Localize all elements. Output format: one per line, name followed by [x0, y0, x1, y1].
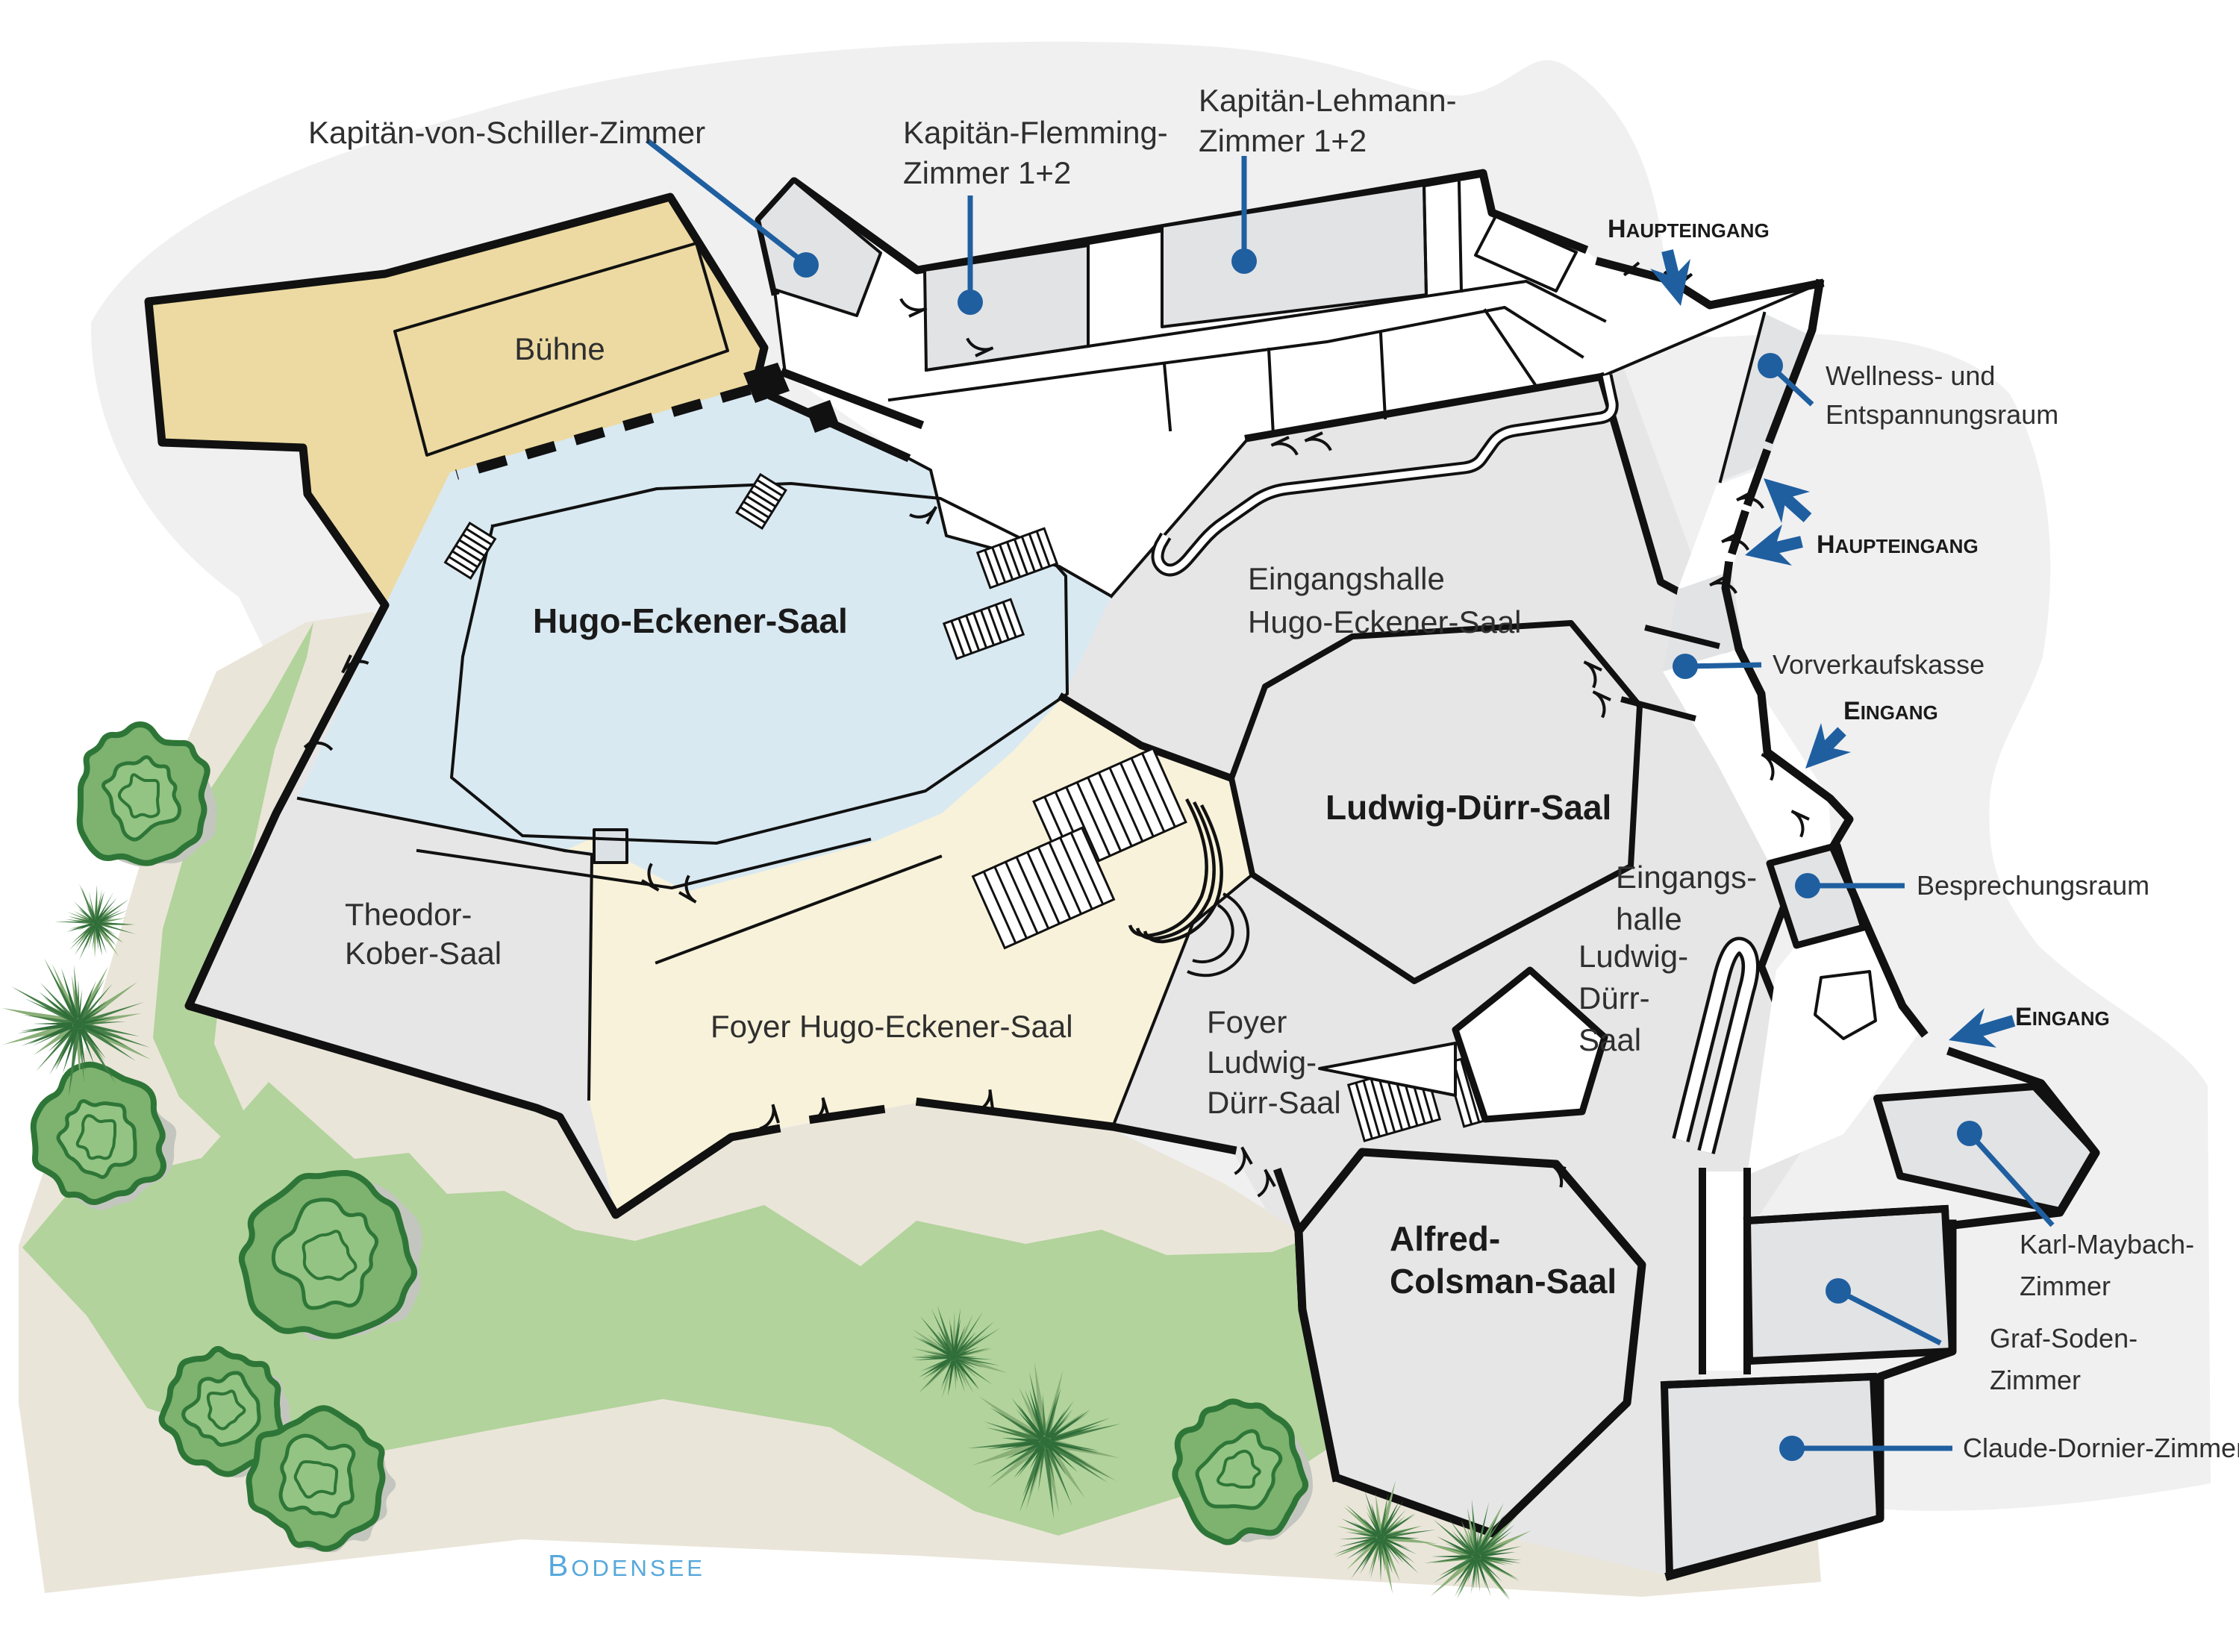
svg-text:Dürr-Saal: Dürr-Saal: [1207, 1085, 1341, 1120]
svg-text:Zimmer: Zimmer: [2020, 1271, 2111, 1301]
svg-text:Kapitän-Flemming-: Kapitän-Flemming-: [903, 115, 1168, 150]
svg-text:HAUPTEINGANG: HAUPTEINGANG: [1817, 531, 1979, 559]
svg-text:Ludwig-: Ludwig-: [1578, 939, 1688, 974]
svg-text:Hugo-Eckener-Saal: Hugo-Eckener-Saal: [533, 601, 848, 640]
svg-text:Vorverkaufskasse: Vorverkaufskasse: [1773, 649, 1985, 680]
svg-text:Eingangshalle: Eingangshalle: [1248, 561, 1445, 596]
svg-text:Foyer: Foyer: [1207, 1004, 1287, 1039]
svg-text:Eingangs-: Eingangs-: [1616, 860, 1757, 895]
svg-text:Hugo-Eckener-Saal: Hugo-Eckener-Saal: [1248, 604, 1522, 639]
svg-text:Foyer Hugo-Eckener-Saal: Foyer Hugo-Eckener-Saal: [711, 1009, 1073, 1044]
svg-text:Entspannungsraum: Entspannungsraum: [1826, 399, 2058, 430]
svg-text:Kober-Saal: Kober-Saal: [345, 936, 502, 971]
svg-text:Zimmer 1+2: Zimmer 1+2: [1199, 123, 1367, 158]
svg-text:Besprechungsraum: Besprechungsraum: [1917, 870, 2149, 901]
svg-text:EINGANG: EINGANG: [2015, 1003, 2110, 1031]
svg-text:Kapitän-Lehmann-: Kapitän-Lehmann-: [1199, 83, 1457, 118]
svg-text:Ludwig-Dürr-Saal: Ludwig-Dürr-Saal: [1325, 788, 1611, 827]
svg-text:Colsman-Saal: Colsman-Saal: [1390, 1262, 1617, 1301]
svg-text:EINGANG: EINGANG: [1843, 697, 1938, 725]
svg-text:Theodor-: Theodor-: [345, 897, 472, 932]
svg-text:Bühne: Bühne: [514, 331, 605, 366]
svg-text:Zimmer 1+2: Zimmer 1+2: [903, 155, 1071, 190]
svg-text:Kapitän-von-Schiller-Zimmer: Kapitän-von-Schiller-Zimmer: [308, 115, 705, 150]
svg-text:Alfred-: Alfred-: [1390, 1219, 1500, 1258]
svg-text:HAUPTEINGANG: HAUPTEINGANG: [1608, 215, 1770, 243]
svg-text:Dürr-: Dürr-: [1578, 980, 1650, 1016]
svg-text:Karl-Maybach-: Karl-Maybach-: [2020, 1229, 2194, 1260]
svg-text:Wellness- und: Wellness- und: [1826, 360, 1995, 391]
svg-text:Claude-Dornier-Zimmer: Claude-Dornier-Zimmer: [1963, 1433, 2239, 1463]
svg-text:Graf-Soden-: Graf-Soden-: [1990, 1323, 2137, 1354]
svg-text:Zimmer: Zimmer: [1990, 1365, 2081, 1395]
svg-text:Ludwig-: Ludwig-: [1207, 1045, 1317, 1080]
svg-text:halle: halle: [1616, 901, 1682, 936]
svg-text:Saal: Saal: [1578, 1022, 1641, 1057]
